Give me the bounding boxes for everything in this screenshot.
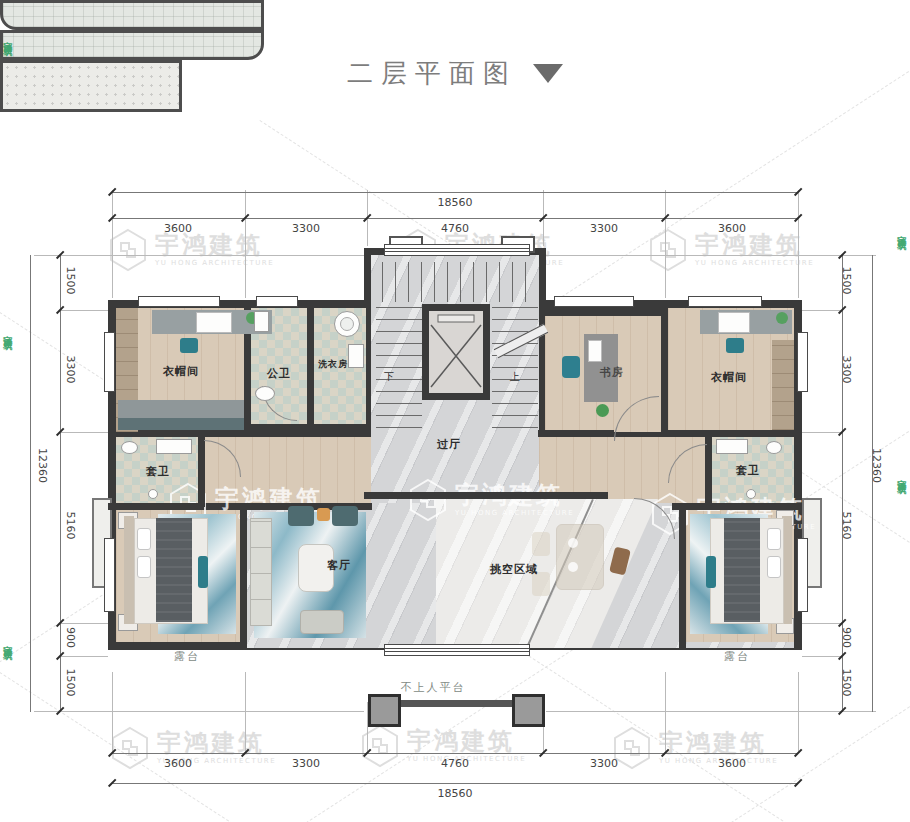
ghost-chair	[532, 532, 550, 556]
plant	[776, 312, 788, 324]
label-terrace-left: 露台	[174, 651, 200, 662]
column	[512, 694, 545, 727]
side-table	[317, 508, 330, 521]
witness-line	[798, 672, 799, 753]
label-terrace-right: 露台	[724, 651, 750, 662]
watermark-en: YU HONG ARCHITECTURE	[455, 510, 574, 517]
dim-seg: 1500	[65, 653, 76, 713]
ghost-plate	[568, 538, 578, 548]
window	[104, 538, 115, 612]
chair	[726, 338, 744, 353]
dim-seg: 1500	[841, 653, 852, 713]
sink	[156, 439, 192, 454]
edge-badge: 宇鸿建筑	[2, 638, 13, 646]
watermark-en: YU HONG ARCHITECTURE	[155, 260, 274, 267]
window	[797, 538, 808, 612]
dim-total-left: 12360	[37, 436, 48, 496]
wardrobe	[772, 340, 794, 430]
edge-badge: 宇鸿建筑	[896, 228, 907, 236]
dim-seg: 4760	[425, 223, 485, 234]
label-living-room: 客厅	[327, 560, 351, 571]
armchair	[288, 506, 314, 526]
floor-plan-sheet: 二层平面图 宇鸿建筑YU HONG ARCHITECTURE 宇鸿建筑YU HO…	[0, 0, 910, 822]
sofa	[250, 518, 272, 626]
window	[256, 296, 298, 307]
watermark-en: YU HONG ARCHITECTURE	[695, 260, 814, 267]
partition-wall	[538, 430, 614, 437]
dim-seg: 3300	[276, 223, 336, 234]
label-ensuite-left: 套卫	[146, 466, 170, 477]
bench	[198, 556, 208, 588]
sink	[254, 311, 269, 332]
chair	[180, 338, 198, 353]
void-guard-wall	[364, 492, 608, 499]
sink	[716, 439, 748, 454]
ottoman	[300, 610, 344, 634]
desk-paper	[588, 340, 602, 362]
plant	[596, 404, 609, 417]
triangle-down-icon	[533, 64, 563, 83]
dim-seg: 3300	[574, 758, 634, 769]
dimension-chain-right: 12360 1500 3300 5160 900 1500	[802, 255, 880, 712]
platform-beam	[382, 700, 528, 707]
elevator-shaft	[422, 304, 490, 400]
stair-down-label: 下	[384, 372, 394, 382]
toilet	[766, 441, 782, 454]
ghost-chair	[532, 572, 550, 596]
toilet	[121, 441, 138, 454]
bench	[706, 556, 716, 588]
dim-seg: 1500	[841, 251, 852, 311]
terrace-right	[0, 30, 264, 60]
pillow	[767, 556, 781, 578]
dimension-chain-left: 12360 1500 3300 5160 900 1500	[30, 255, 108, 712]
ghost-dining-table	[556, 524, 604, 590]
label-cloakroom-left: 衣帽间	[163, 366, 199, 377]
stair-treads-top	[382, 262, 530, 302]
stair-treads-left	[376, 304, 422, 428]
window	[384, 244, 530, 256]
washing-machine-drum	[340, 317, 354, 331]
dim-seg: 3300	[841, 340, 852, 400]
terrace-left	[0, 0, 264, 30]
window	[384, 644, 530, 656]
dim-seg: 1500	[65, 251, 76, 311]
elevator-cross-icon	[429, 311, 483, 393]
toilet	[255, 386, 275, 401]
label-study: 书房	[600, 367, 624, 378]
dim-seg: 3600	[702, 223, 762, 234]
dim-total-top: 18560	[425, 197, 485, 208]
floor-drain	[746, 489, 756, 499]
window	[138, 296, 220, 307]
dim-seg: 5160	[65, 496, 76, 556]
drawing-title: 二层平面图	[0, 60, 910, 86]
label-void-area: 挑空区域	[490, 564, 538, 575]
ghost-plate	[568, 562, 578, 572]
partition-wall	[679, 503, 686, 648]
dresser-top	[196, 312, 232, 333]
bed-headboard	[124, 516, 134, 624]
label-public-bath: 公卫	[267, 368, 291, 379]
pillow	[137, 556, 151, 578]
edge-badge: 宇鸿建筑	[2, 34, 13, 42]
dim-seg: 3300	[65, 340, 76, 400]
partition-wall	[668, 430, 802, 437]
label-platform: 不上人平台	[401, 682, 466, 693]
label-cloakroom-right: 衣帽间	[711, 372, 747, 383]
partition-wall	[108, 430, 318, 437]
dim-seg: 3600	[148, 223, 208, 234]
cabinet-front	[118, 418, 244, 430]
dresser-top	[718, 312, 750, 333]
pillow	[137, 528, 151, 550]
dim-seg: 3300	[276, 758, 336, 769]
dim-seg: 3600	[148, 758, 208, 769]
partition-wall	[661, 308, 668, 430]
window	[797, 332, 808, 392]
dimension-chain-bottom: 3600 3300 4760 3300 3600 18560	[112, 740, 798, 800]
bed-blanket	[156, 518, 192, 622]
armchair	[332, 506, 358, 526]
desk-chair	[562, 356, 580, 378]
dimension-chain-top: 18560 3600 3300 4760 3300 3600	[112, 188, 798, 244]
stair-up-label: 上	[510, 372, 520, 382]
page-title: 二层平面图	[347, 60, 517, 86]
stair-treads-right	[492, 304, 538, 428]
partition-wall	[307, 308, 314, 424]
edge-badge: 宇鸿建筑	[896, 472, 907, 480]
label-ensuite-right: 套卫	[736, 465, 760, 476]
logo-watermark: 宇鸿建筑YU HONG ARCHITECTURE	[408, 478, 574, 522]
dim-seg: 3300	[574, 223, 634, 234]
bed-blanket	[724, 518, 760, 622]
witness-line	[798, 190, 799, 298]
partition-wall	[240, 503, 247, 648]
floor-drain	[148, 489, 158, 499]
edge-badge: 宇鸿建筑	[2, 328, 13, 336]
dim-seg: 5160	[841, 496, 852, 556]
window	[688, 296, 762, 307]
label-laundry: 洗衣房	[318, 360, 348, 369]
pillow	[767, 528, 781, 550]
laundry-sink	[348, 344, 364, 368]
column	[368, 694, 401, 727]
dim-total-bottom: 18560	[425, 788, 485, 799]
window	[554, 296, 634, 307]
hexagon-logo-icon	[408, 478, 448, 522]
partition-wall	[672, 503, 802, 510]
dim-total-right: 12360	[871, 436, 882, 496]
window	[104, 332, 115, 392]
dim-seg: 4760	[425, 758, 485, 769]
label-hall: 过厅	[437, 439, 461, 450]
dim-seg: 3600	[702, 758, 762, 769]
partition-wall	[108, 503, 196, 510]
